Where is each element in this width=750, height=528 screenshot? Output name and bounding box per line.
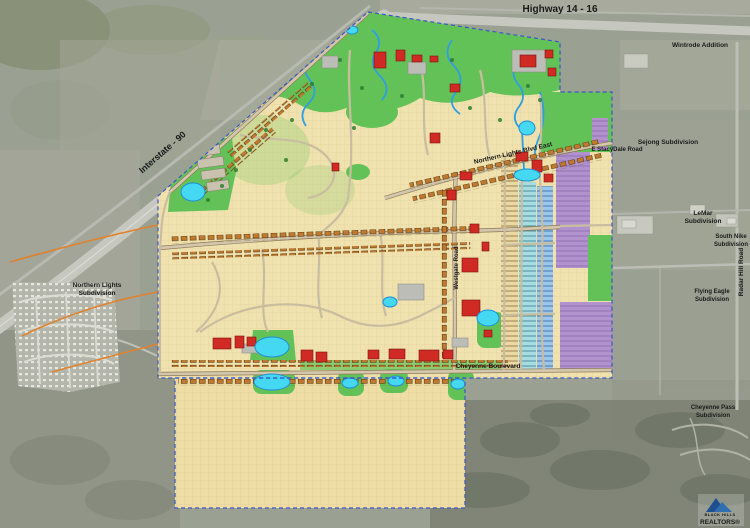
label-westgate-road: Westgate Road <box>454 246 460 290</box>
label-south-nike-line1: South Nike <box>715 234 747 240</box>
realtor-logo: BLACK HILLS REALTORS® <box>698 494 744 526</box>
label-cheyenne-boulevard: Cheyenne Boulevard <box>456 363 521 370</box>
label-lemar-subdivision-line1: LeMar <box>693 210 713 217</box>
label-south-nike-line2: Subdivision <box>714 242 748 248</box>
master-plan-map-screenshot: Highway 14 - 16 Interstate - 90 Wintrode… <box>0 0 750 528</box>
label-radar-hill-road: Radar Hill Road <box>738 248 745 296</box>
label-flying-eagle-line1: Flying Eagle <box>694 289 730 295</box>
label-wintrode-addition: Wintrode Addition <box>672 42 728 49</box>
logo-realtors: REALTORS® <box>700 518 740 526</box>
logo-black-hills: BLACK HILLS <box>704 512 735 517</box>
master-plan-map-image: Highway 14 - 16 Interstate - 90 Wintrode… <box>0 0 750 528</box>
label-cheyenne-pass-line2: Subdivision <box>696 413 730 419</box>
label-stacydale-road: E StacyDale Road <box>591 147 642 153</box>
label-sejong-subdivision: Sejong Subdivision <box>638 139 698 146</box>
label-cheyenne-pass-line1: Cheyenne Pass <box>691 405 736 411</box>
label-northern-lights-sub-line1: Northern Lights <box>73 282 122 289</box>
label-highway-14-16: Highway 14 - 16 <box>522 4 597 15</box>
label-lemar-subdivision-line2: Subdivision <box>685 218 722 225</box>
label-northern-lights-sub-line2: Subdivision <box>79 290 116 297</box>
label-flying-eagle-line2: Subdivision <box>695 297 729 303</box>
